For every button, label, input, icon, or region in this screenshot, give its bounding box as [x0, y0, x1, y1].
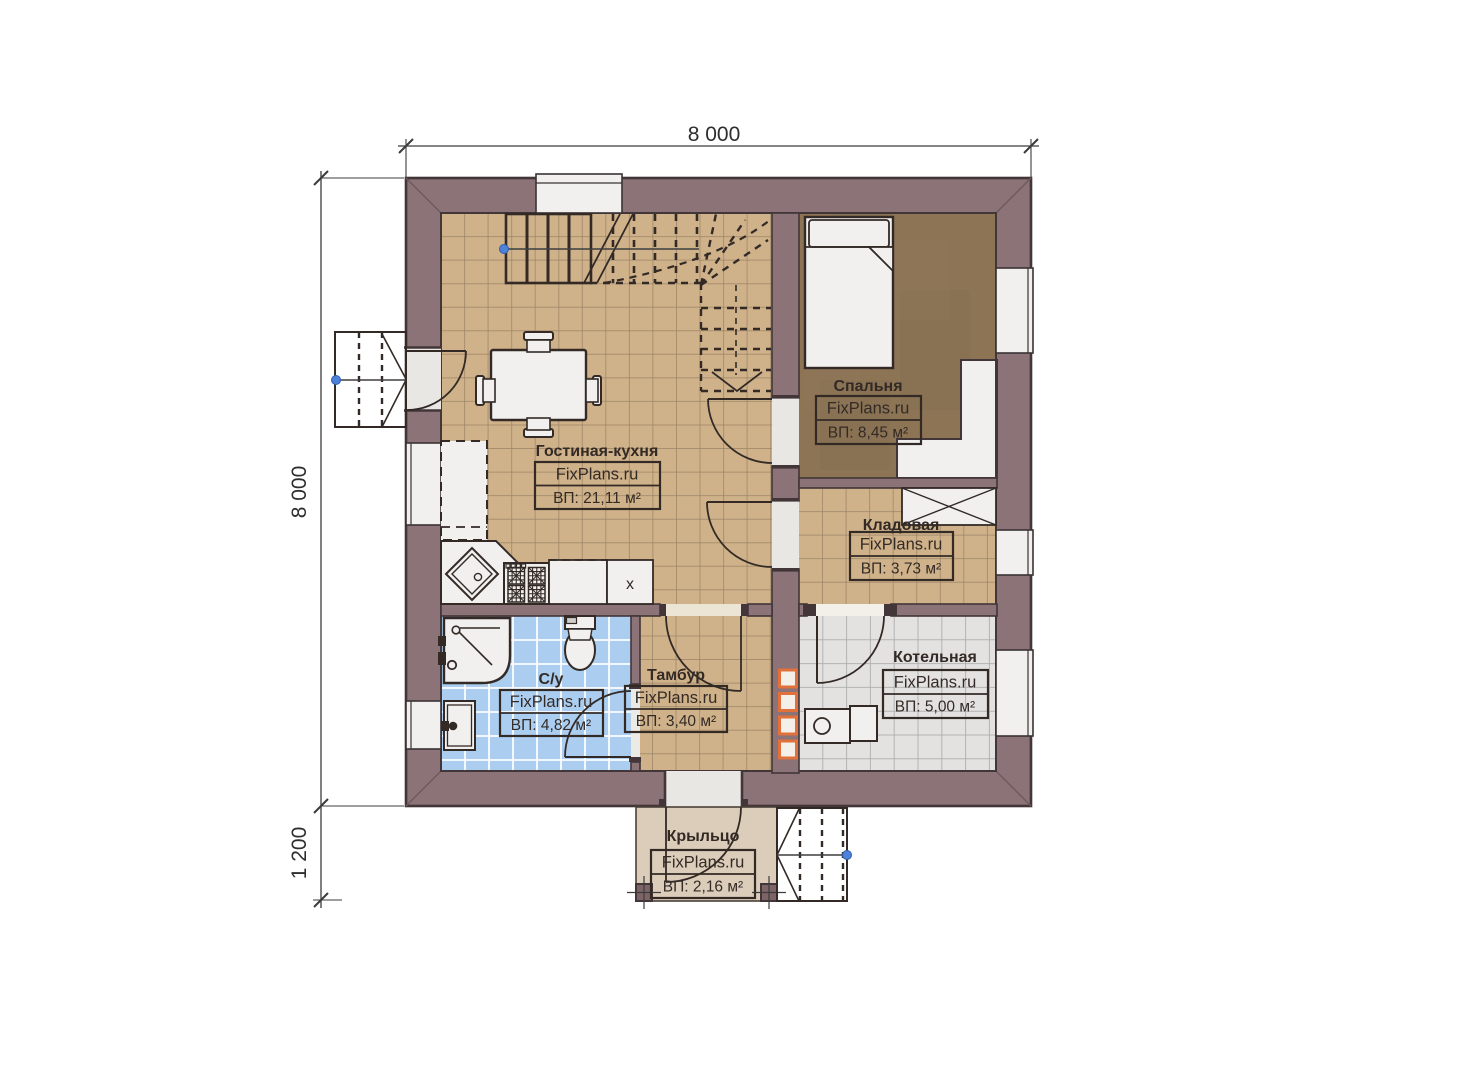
svg-text:ВП: 2,16 м²: ВП: 2,16 м² — [663, 879, 743, 896]
svg-text:FixPlans.ru: FixPlans.ru — [510, 693, 593, 711]
svg-text:FixPlans.ru: FixPlans.ru — [556, 465, 639, 483]
svg-text:FixPlans.ru: FixPlans.ru — [894, 674, 977, 692]
svg-text:Котельная: Котельная — [893, 649, 977, 666]
svg-text:FixPlans.ru: FixPlans.ru — [635, 689, 718, 707]
svg-text:8 000: 8 000 — [288, 466, 311, 519]
svg-text:ВП: 21,11 м²: ВП: 21,11 м² — [553, 490, 641, 507]
svg-text:ВП: 3,40 м²: ВП: 3,40 м² — [636, 713, 716, 730]
svg-text:FixPlans.ru: FixPlans.ru — [662, 854, 745, 872]
svg-text:Гостиная-кухня: Гостиная-кухня — [536, 443, 659, 460]
svg-text:Тамбур: Тамбур — [647, 667, 705, 684]
svg-text:FixPlans.ru: FixPlans.ru — [827, 400, 910, 418]
svg-text:С/у: С/у — [539, 671, 564, 688]
svg-text:Спальня: Спальня — [833, 378, 902, 395]
svg-text:FixPlans.ru: FixPlans.ru — [860, 536, 943, 554]
svg-text:х: х — [626, 576, 634, 593]
svg-text:ВП: 3,73 м²: ВП: 3,73 м² — [861, 561, 941, 578]
svg-text:ВП: 8,45 м²: ВП: 8,45 м² — [828, 425, 908, 442]
svg-text:8 000: 8 000 — [688, 123, 741, 146]
svg-text:1 200: 1 200 — [288, 827, 311, 880]
svg-text:ВП: 4,82 м²: ВП: 4,82 м² — [511, 717, 591, 734]
svg-text:Крыльцо: Крыльцо — [667, 828, 740, 845]
svg-text:ВП: 5,00 м²: ВП: 5,00 м² — [895, 699, 975, 716]
